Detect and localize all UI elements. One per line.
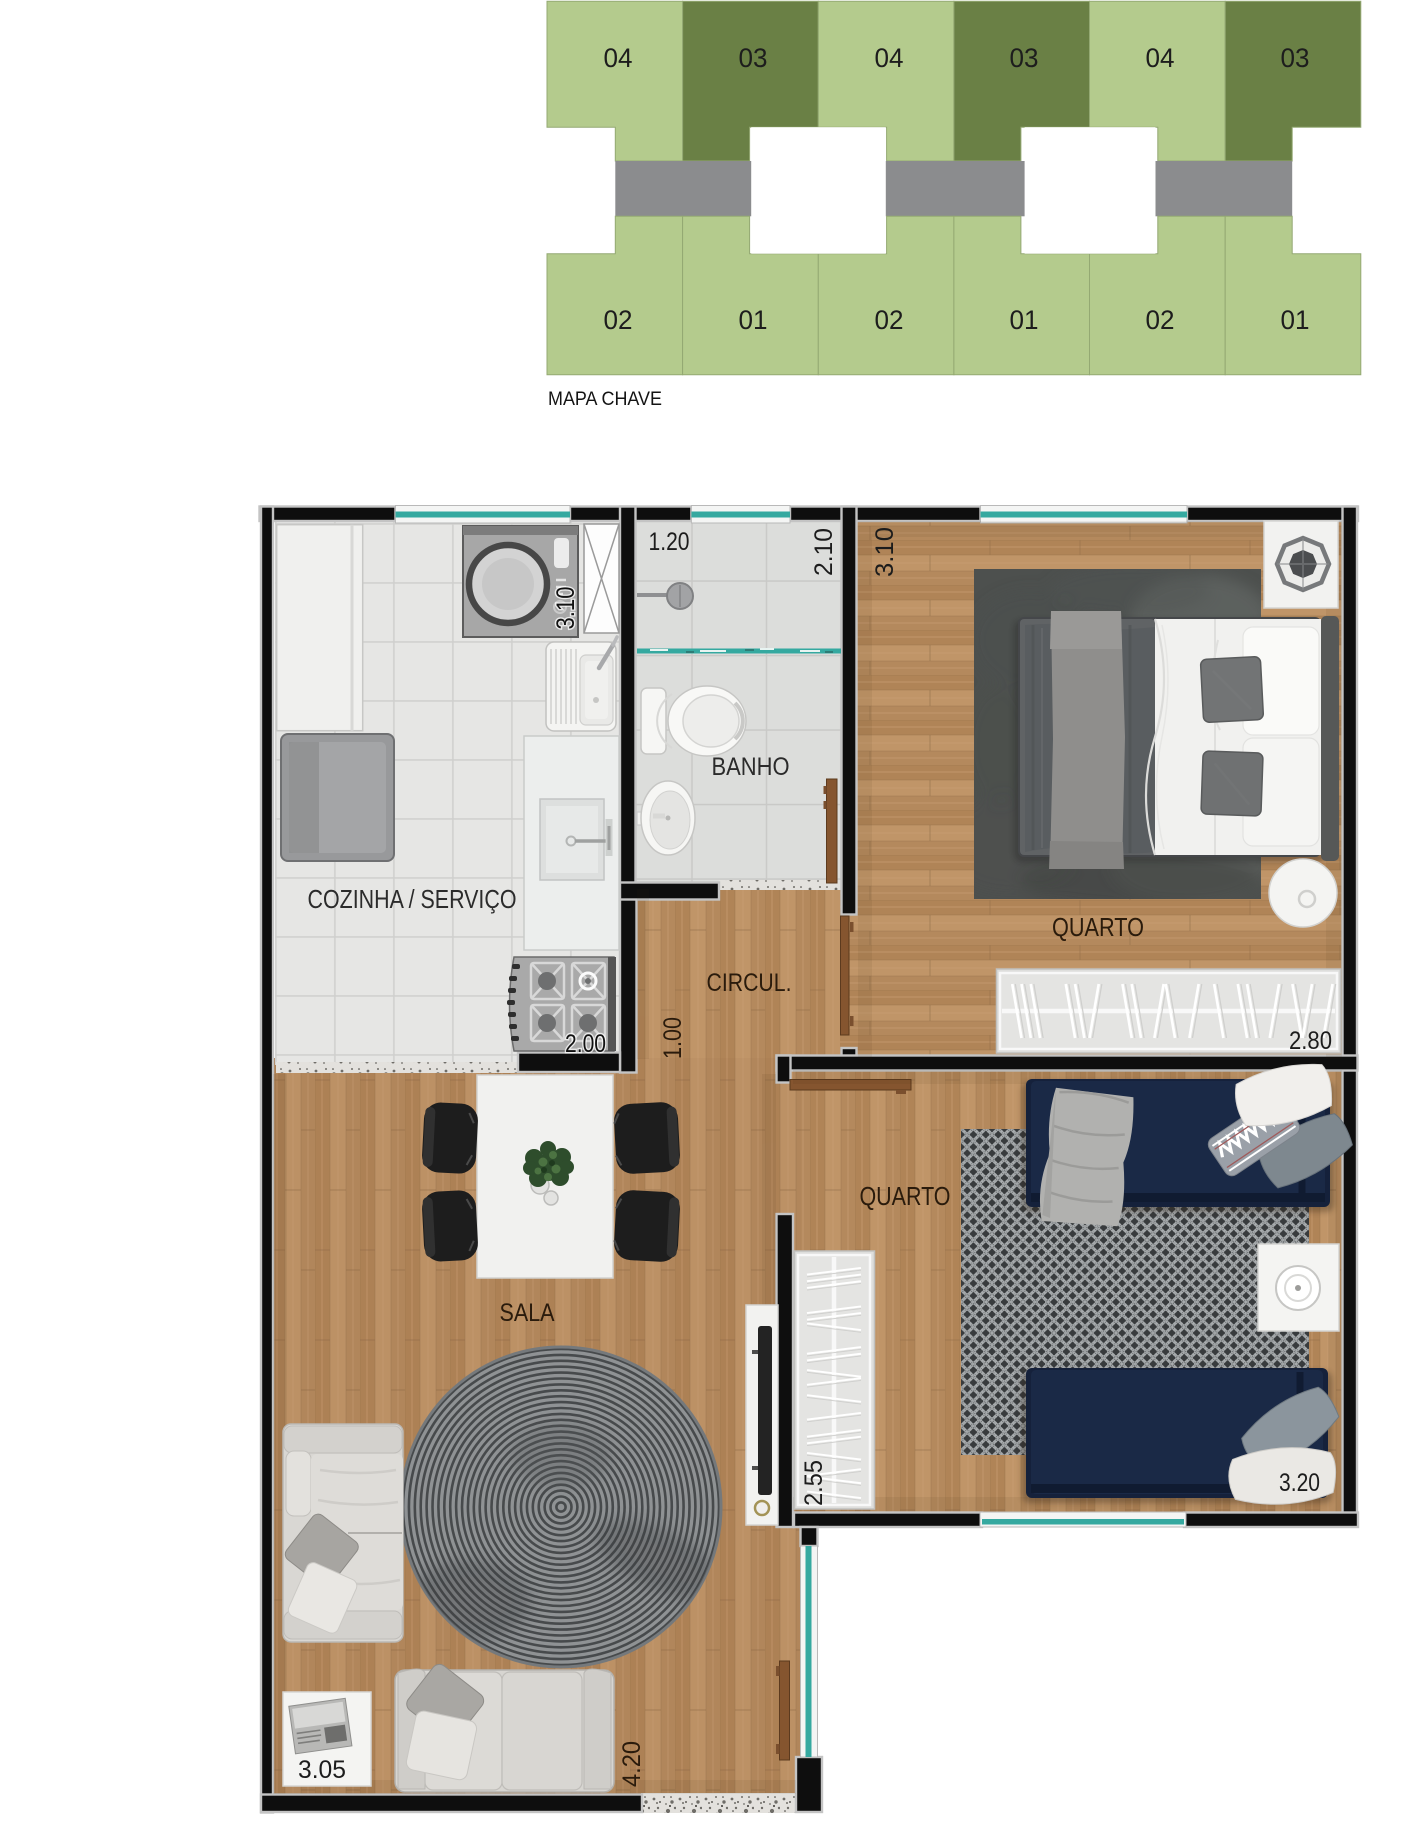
svg-text:02: 02 — [1146, 305, 1175, 335]
svg-text:03: 03 — [739, 43, 768, 73]
svg-text:02: 02 — [604, 305, 633, 335]
svg-text:01: 01 — [1281, 305, 1310, 335]
svg-text:01: 01 — [1010, 305, 1039, 335]
svg-text:MAPA CHAVE: MAPA CHAVE — [548, 388, 662, 410]
svg-text:3.20: 3.20 — [1279, 1469, 1320, 1497]
svg-text:2.80: 2.80 — [1289, 1027, 1332, 1055]
svg-text:SALA: SALA — [500, 1299, 555, 1327]
svg-text:4.20: 4.20 — [618, 1741, 646, 1787]
svg-text:03: 03 — [1010, 43, 1039, 73]
svg-text:01: 01 — [739, 305, 768, 335]
svg-text:QUARTO: QUARTO — [1052, 912, 1144, 942]
svg-text:04: 04 — [875, 43, 904, 73]
svg-text:3.10: 3.10 — [871, 527, 899, 577]
svg-text:2.10: 2.10 — [810, 528, 838, 576]
svg-text:QUARTO: QUARTO — [860, 1181, 951, 1211]
svg-text:2.00: 2.00 — [565, 1030, 606, 1058]
svg-text:2.55: 2.55 — [800, 1460, 828, 1506]
svg-text:04: 04 — [1146, 43, 1175, 73]
svg-text:BANHO: BANHO — [712, 753, 790, 781]
svg-text:03: 03 — [1281, 43, 1310, 73]
svg-text:COZINHA / SERVIÇO: COZINHA / SERVIÇO — [308, 884, 517, 914]
svg-text:3.10: 3.10 — [552, 587, 580, 630]
svg-text:1.00: 1.00 — [659, 1017, 687, 1059]
svg-text:3.05: 3.05 — [298, 1756, 346, 1784]
svg-text:04: 04 — [604, 43, 633, 73]
svg-text:CIRCUL.: CIRCUL. — [707, 969, 792, 997]
svg-text:1.20: 1.20 — [649, 528, 690, 556]
svg-text:02: 02 — [875, 305, 904, 335]
